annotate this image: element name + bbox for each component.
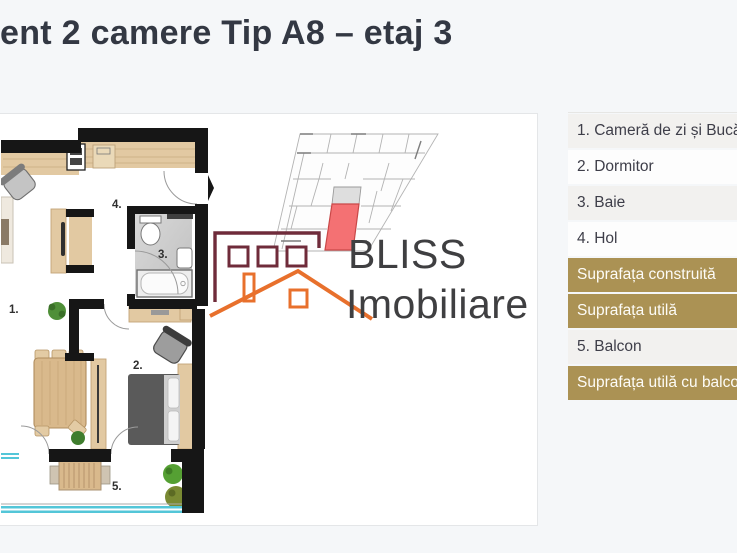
legend-row-hall: 4. Hol [568, 222, 737, 256]
dining-table [34, 350, 87, 438]
tv-console [51, 209, 66, 273]
logo-text-line1: BLISS [348, 231, 467, 277]
key-plan-unit-above [332, 187, 361, 204]
entrance-door-leaf [208, 175, 214, 201]
room-label-living: 1. [9, 304, 19, 316]
legend-row-built-area: Suprafața construită [568, 258, 737, 292]
room-label-balcony: 5. [112, 481, 122, 493]
fireplace-tv-unit [1, 197, 13, 263]
legend-row-usable-with-balcony: Suprafața utilă cu balcon [568, 366, 737, 400]
washbasin [177, 248, 192, 268]
entrance-door-arc [164, 171, 197, 204]
bedroom-armchair [150, 324, 193, 366]
room-label-bedroom: 2. [133, 360, 143, 372]
legend-row-living: 1. Cameră de zi și Bucătărie [568, 114, 737, 148]
legend-row-usable-area: Suprafața utilă [568, 294, 737, 328]
legend-row-bath: 3. Baie [568, 186, 737, 220]
bedroom-door-arc [104, 304, 129, 329]
plant-small [71, 431, 85, 445]
bathtub [137, 270, 192, 297]
toilet [140, 216, 161, 245]
bed [128, 364, 199, 449]
room-legend: 1. Cameră de zi și Bucătărie 2. Dormitor… [568, 112, 737, 402]
stove [93, 145, 115, 168]
bliss-logo: BLISS Imobiliare [210, 231, 529, 327]
legend-row-bedroom: 2. Dormitor [568, 150, 737, 184]
plant-living [48, 302, 66, 320]
bedroom [91, 304, 199, 449]
logo-text-line2: Imobiliare [346, 281, 529, 327]
page-title: Apartament 2 camere Tip A8 – etaj 3 [0, 14, 453, 53]
floorplan-card: 1. 2. 3. 4. 5. BLISS Imobiliare [0, 113, 538, 526]
balcony-table [50, 461, 110, 490]
room-label-hall: 4. [112, 199, 122, 211]
page: Apartament 2 camere Tip A8 – etaj 3 [0, 0, 737, 553]
closet-niche [69, 217, 92, 265]
floorplan-image: 1. 2. 3. 4. 5. BLISS Imobiliare [1, 114, 537, 525]
room-label-bath: 3. [158, 249, 168, 261]
wardrobe [91, 359, 106, 449]
legend-row-balcony: 5. Balcon [568, 330, 737, 364]
